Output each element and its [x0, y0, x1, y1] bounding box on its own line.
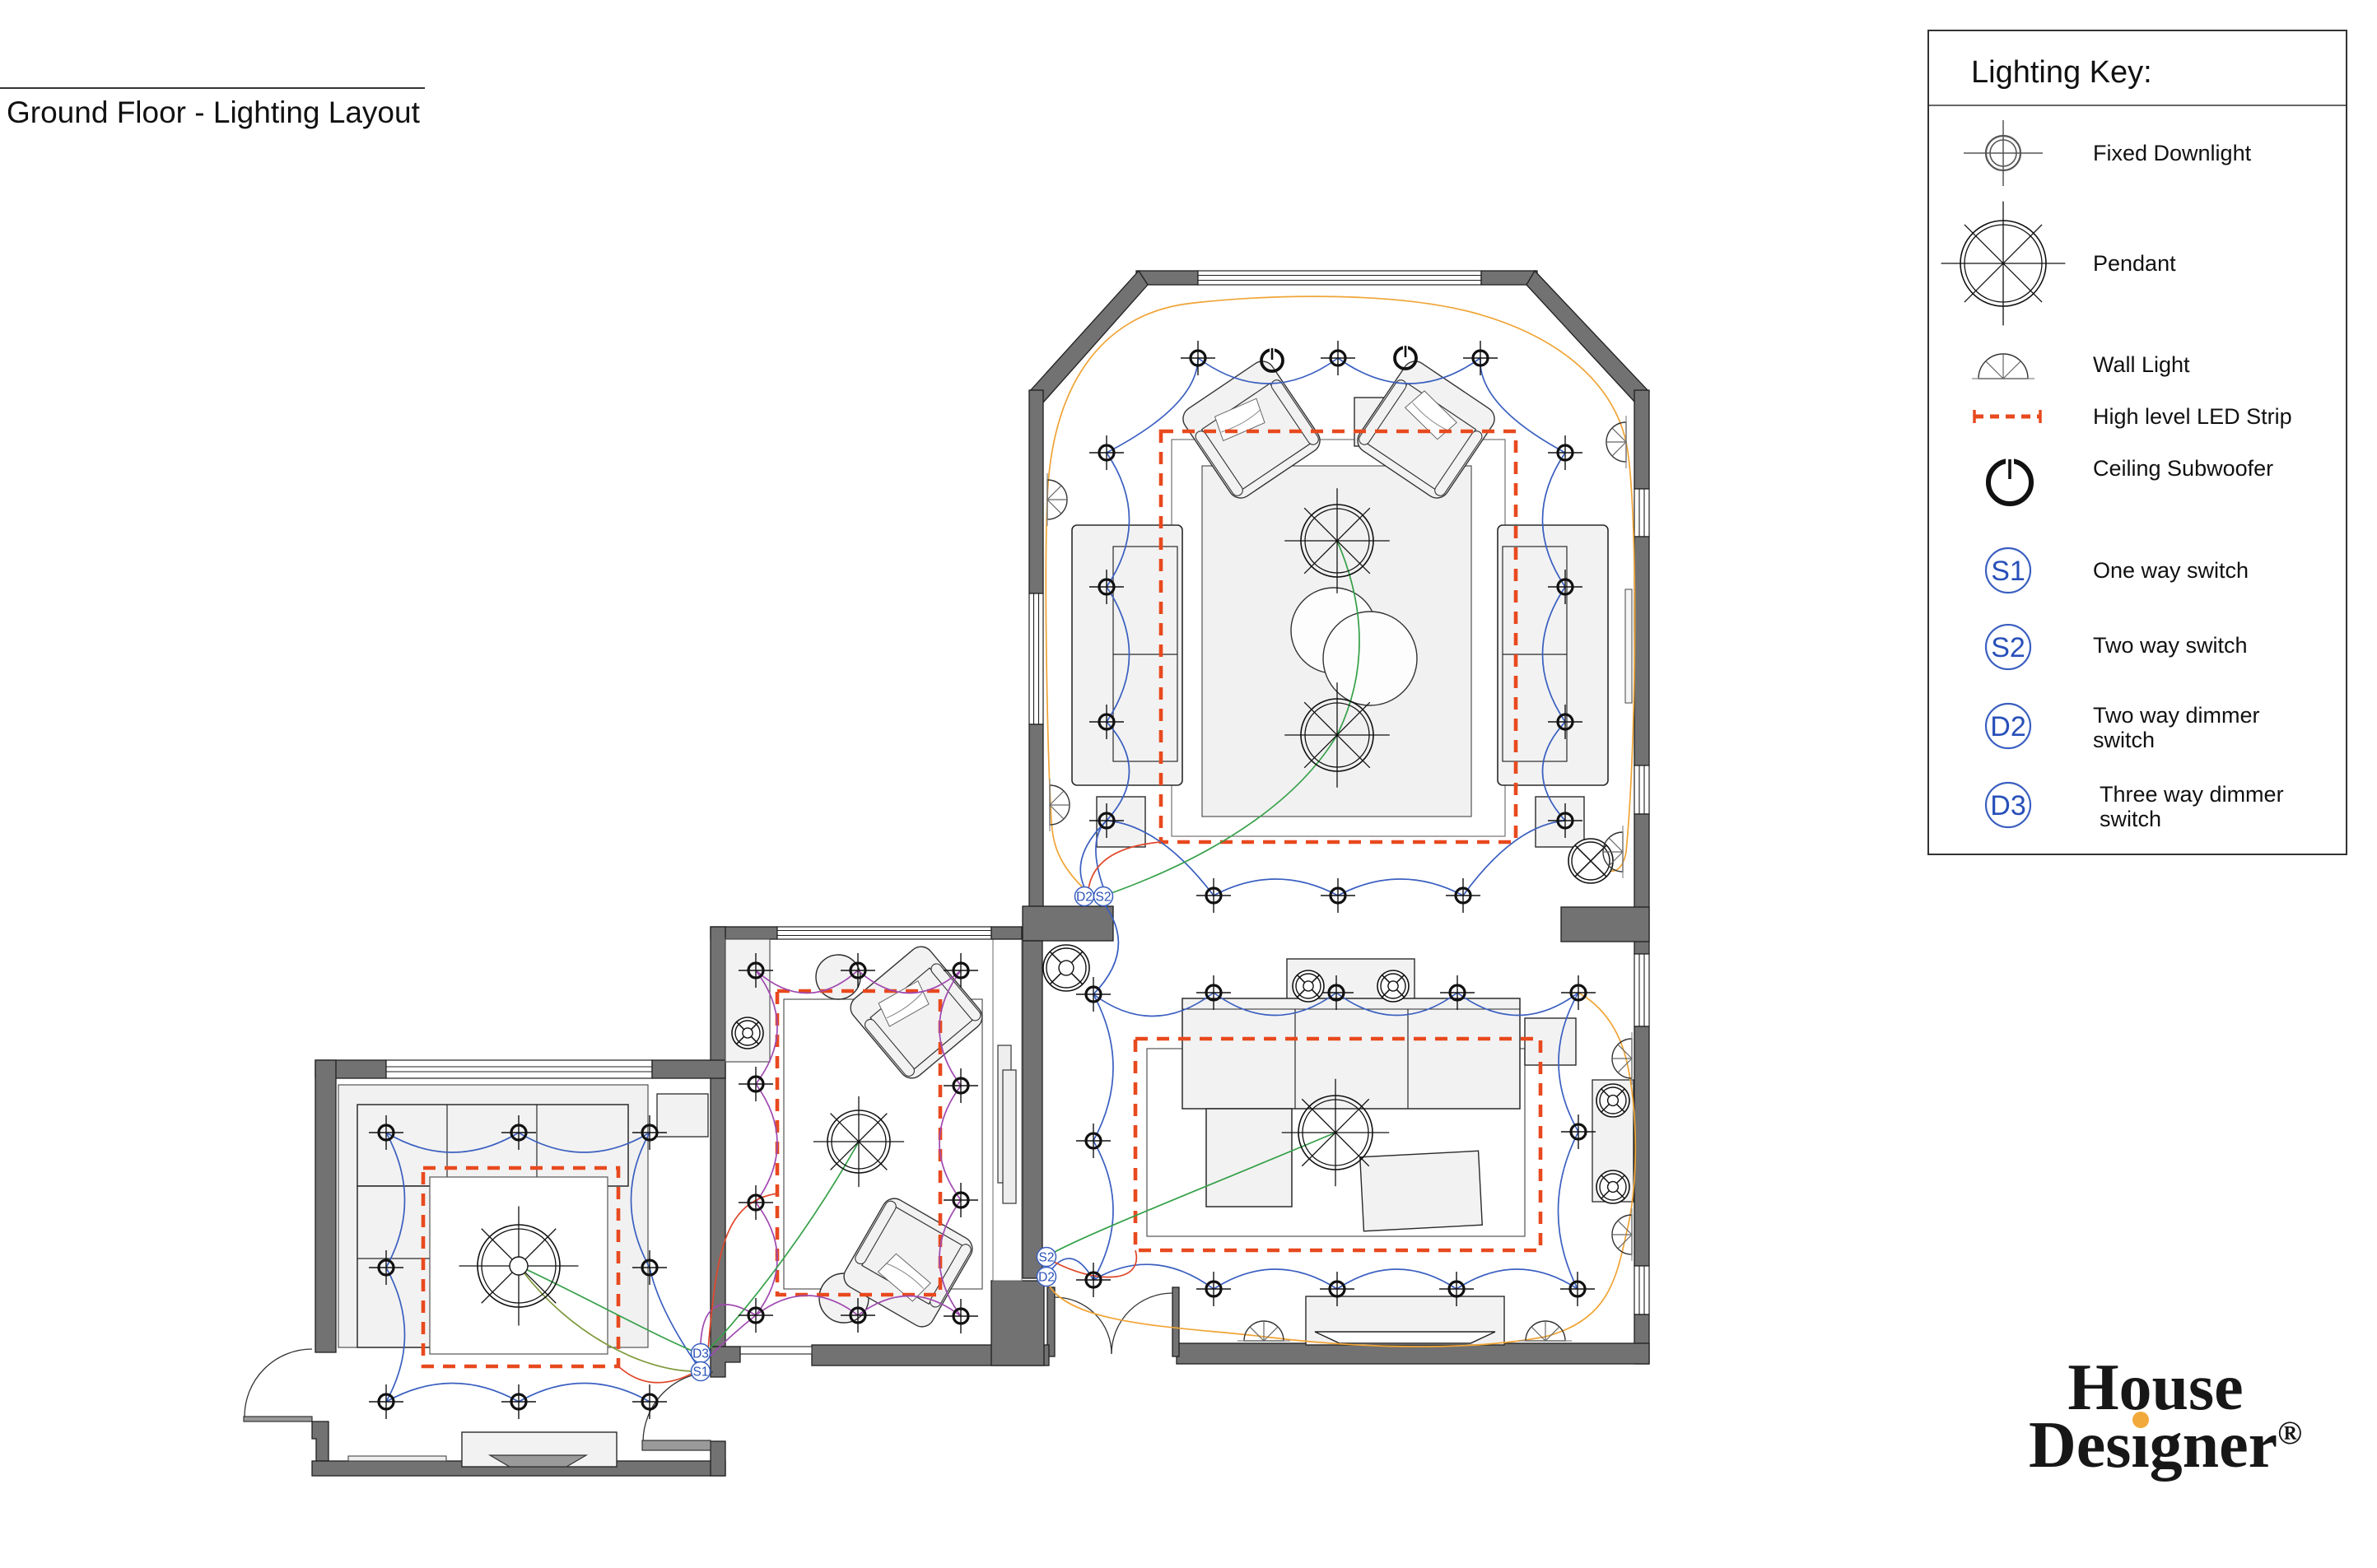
svg-text:Two way dimmer: Two way dimmer	[2093, 703, 2260, 728]
svg-text:switch: switch	[2093, 728, 2155, 752]
svg-text:Desıgner®: Desıgner®	[2029, 1409, 2302, 1482]
svg-text:S1: S1	[1991, 556, 2025, 587]
svg-text:D3: D3	[1990, 790, 2025, 821]
svg-text:High level LED Strip: High level LED Strip	[2093, 404, 2292, 429]
svg-text:S2: S2	[1039, 1251, 1055, 1265]
svg-text:S1: S1	[693, 1366, 709, 1380]
svg-text:Pendant: Pendant	[2093, 251, 2176, 276]
svg-text:D3: D3	[692, 1347, 709, 1361]
svg-text:D2: D2	[1076, 891, 1093, 905]
svg-text:switch: switch	[2100, 807, 2161, 831]
svg-text:One way switch: One way switch	[2093, 558, 2249, 583]
svg-text:Fixed Downlight: Fixed Downlight	[2093, 141, 2252, 165]
svg-text:Ceiling Subwoofer: Ceiling Subwoofer	[2093, 456, 2273, 481]
svg-text:S2: S2	[1096, 891, 1112, 905]
svg-text:Two way switch: Two way switch	[2093, 633, 2248, 658]
svg-text:Ground Floor - Lighting Layout: Ground Floor - Lighting Layout	[7, 95, 421, 129]
svg-text:Lighting Key:: Lighting Key:	[1971, 55, 2152, 90]
svg-text:D2: D2	[1990, 711, 2025, 742]
svg-text:D2: D2	[1038, 1271, 1055, 1285]
svg-text:S2: S2	[1991, 632, 2025, 663]
svg-text:Wall Light: Wall Light	[2093, 352, 2190, 377]
svg-text:Three way dimmer: Three way dimmer	[2100, 782, 2284, 807]
